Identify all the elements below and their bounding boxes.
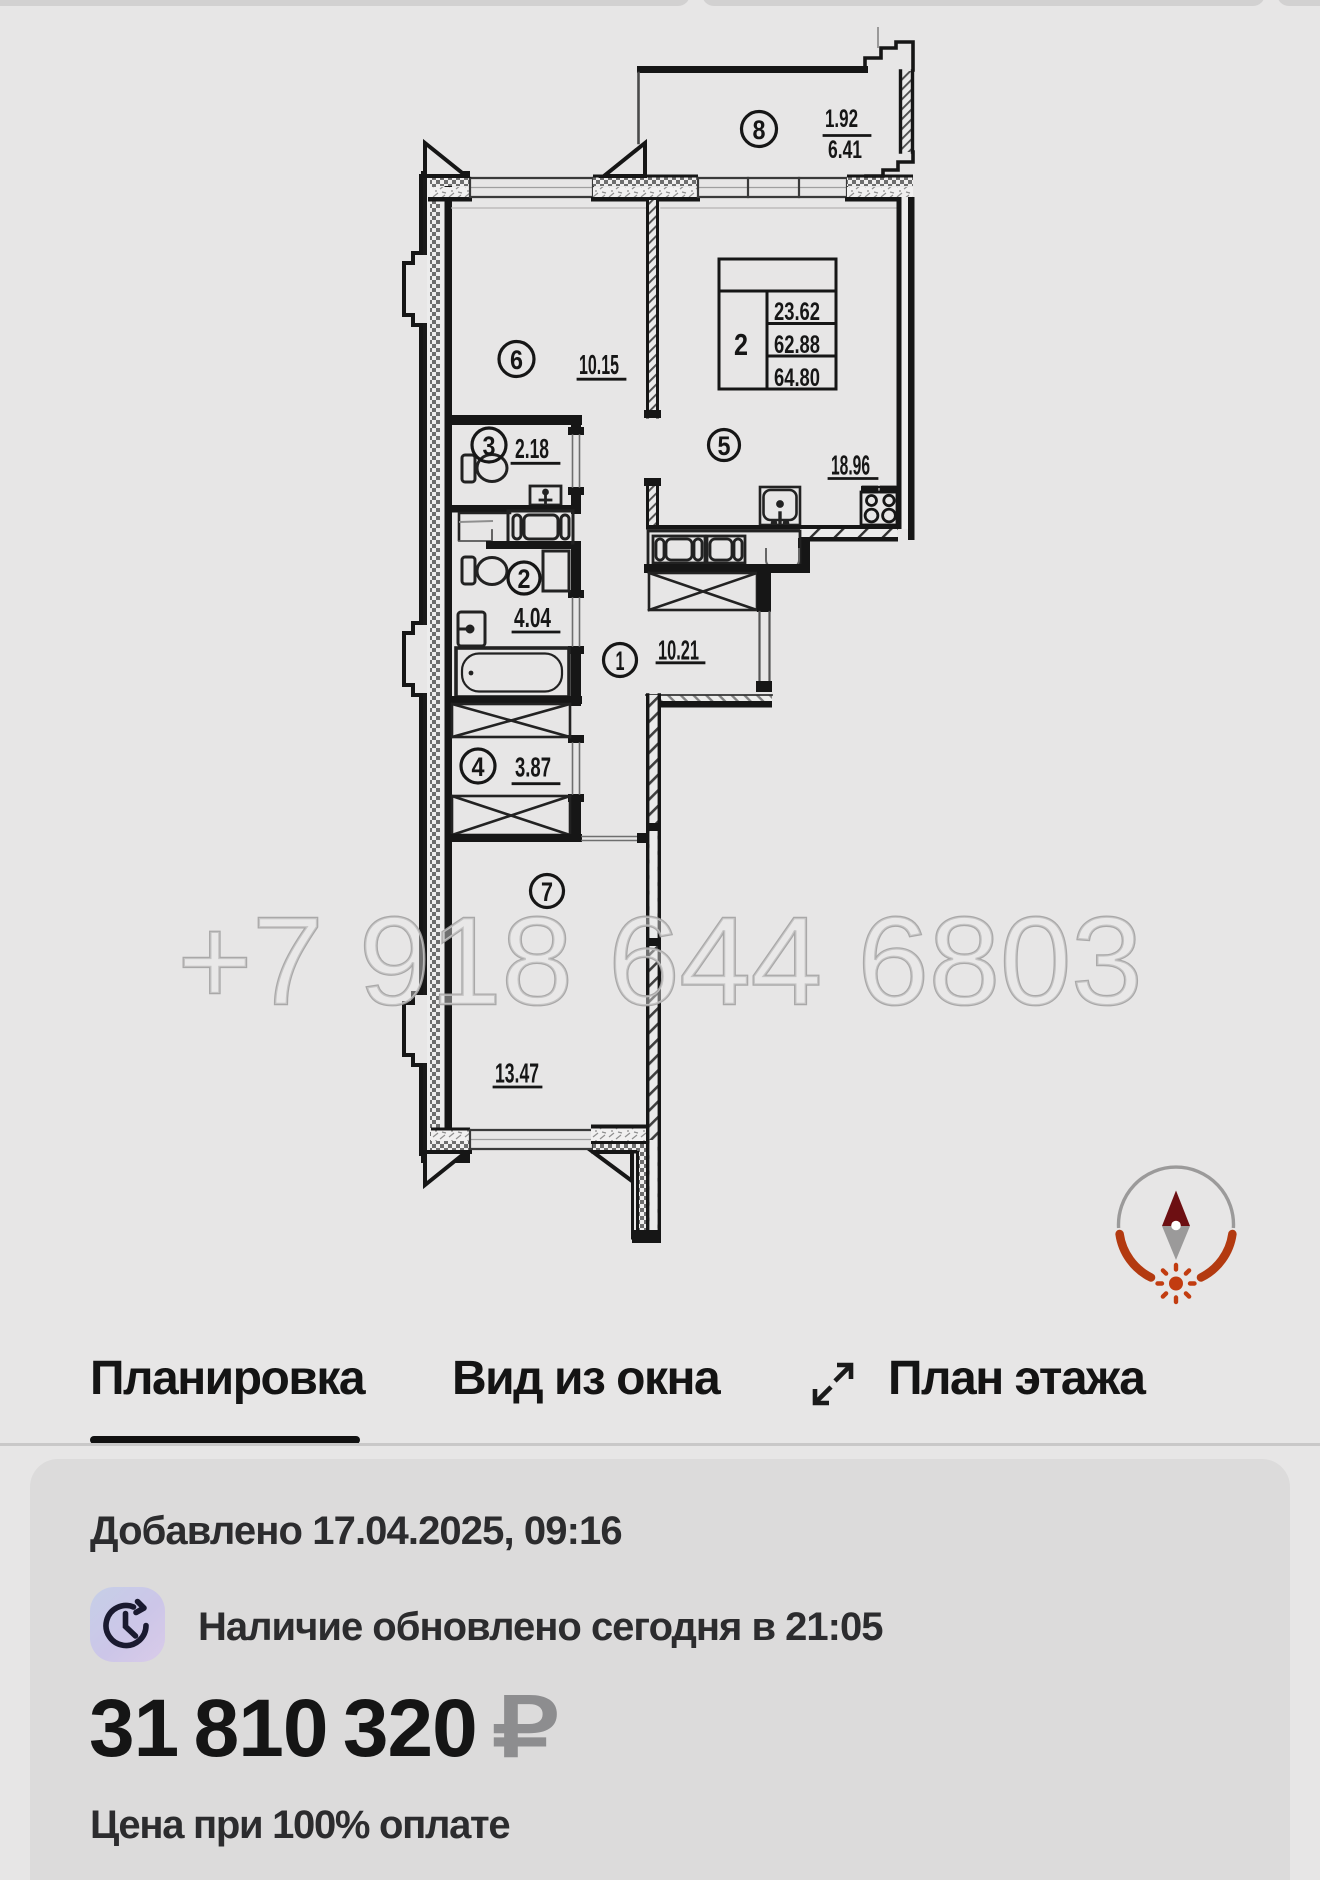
- svg-text:13.47: 13.47: [495, 1058, 539, 1089]
- svg-text:1: 1: [616, 646, 625, 676]
- svg-text:10.15: 10.15: [579, 349, 619, 380]
- svg-text:4.04: 4.04: [514, 602, 551, 633]
- svg-text:3.87: 3.87: [515, 752, 551, 783]
- svg-text:64.80: 64.80: [774, 364, 820, 392]
- svg-text:2: 2: [518, 564, 531, 594]
- svg-text:6: 6: [510, 345, 523, 375]
- svg-text:4: 4: [472, 752, 485, 782]
- svg-text:18.96: 18.96: [831, 450, 870, 481]
- svg-text:8: 8: [753, 115, 766, 145]
- svg-text:5: 5: [718, 431, 731, 461]
- svg-text:1.92: 1.92: [825, 105, 858, 133]
- svg-text:23.62: 23.62: [774, 298, 820, 326]
- svg-text:2: 2: [734, 327, 748, 362]
- svg-text:3: 3: [483, 431, 496, 461]
- svg-text:10.21: 10.21: [658, 635, 699, 666]
- svg-text:62.88: 62.88: [774, 331, 820, 359]
- svg-text:2.18: 2.18: [515, 433, 549, 464]
- svg-text:+7 918 644 6803: +7 918 644 6803: [178, 892, 1143, 1031]
- svg-text:6.41: 6.41: [828, 136, 862, 164]
